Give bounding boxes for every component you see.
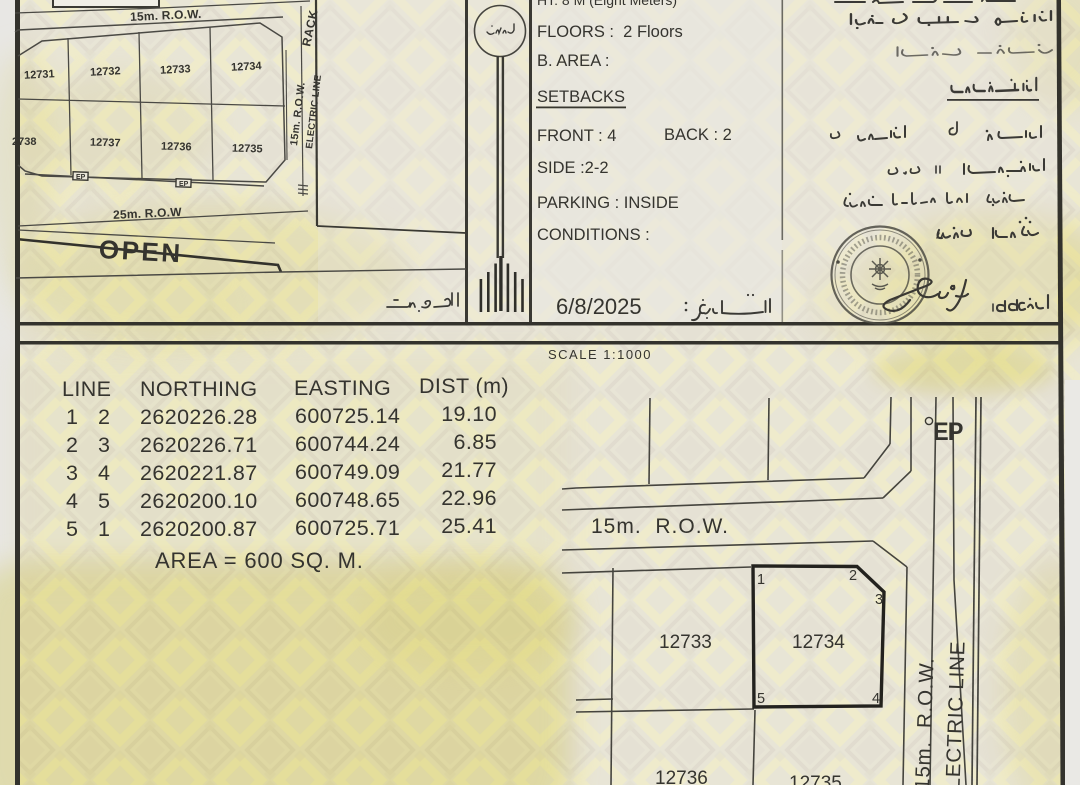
svg-text:2620221.87: 2620221.87 [140, 461, 258, 485]
svg-text:600725.14: 600725.14 [295, 404, 400, 428]
svg-text:12736: 12736 [161, 141, 192, 154]
svg-text:SETBACKS: SETBACKS [537, 88, 625, 106]
svg-text:FRONT : 4: FRONT : 4 [537, 127, 616, 145]
svg-text:DIST (m): DIST (m) [419, 374, 509, 398]
svg-text:25.41: 25.41 [441, 514, 497, 538]
svg-text:600749.09: 600749.09 [295, 460, 400, 484]
svg-text:EASTING: EASTING [294, 376, 391, 400]
svg-text:4: 4 [98, 461, 110, 485]
svg-text:600744.24: 600744.24 [295, 432, 400, 456]
svg-text:2620200.87: 2620200.87 [140, 517, 258, 541]
svg-text:12733: 12733 [659, 632, 712, 653]
svg-text:NORTHING: NORTHING [140, 377, 257, 401]
svg-text:AREA = 600 SQ. M.: AREA = 600 SQ. M. [155, 548, 364, 573]
svg-text:12733: 12733 [160, 63, 191, 77]
svg-text:15m. R.O.W.: 15m. R.O.W. [591, 515, 729, 538]
svg-text:2620226.28: 2620226.28 [140, 405, 258, 429]
svg-text:4: 4 [66, 489, 78, 513]
svg-text:6/8/2025: 6/8/2025 [556, 294, 642, 319]
svg-text:5: 5 [66, 517, 78, 541]
svg-text:12737: 12737 [90, 137, 121, 150]
svg-text:600748.65: 600748.65 [295, 488, 400, 512]
svg-text:6.85: 6.85 [454, 430, 497, 454]
svg-text:15m. R.O.W.: 15m. R.O.W. [911, 657, 939, 785]
svg-text:2620226.71: 2620226.71 [140, 433, 258, 457]
svg-text:OPEN: OPEN [98, 234, 183, 268]
svg-text:2620200.10: 2620200.10 [140, 489, 258, 513]
svg-text:FLOORS : 2 Floors: FLOORS : 2 Floors [537, 23, 683, 41]
svg-text:ELECTRIC LINE: ELECTRIC LINE [941, 640, 970, 785]
svg-text:12732: 12732 [90, 65, 121, 79]
svg-text:2: 2 [849, 568, 857, 584]
svg-text:EP: EP [179, 181, 189, 188]
svg-text:1: 1 [66, 405, 78, 429]
svg-text:5: 5 [98, 489, 110, 513]
svg-text:600725.71: 600725.71 [295, 516, 400, 540]
svg-text:2: 2 [66, 433, 78, 457]
svg-text:12735: 12735 [789, 773, 842, 785]
svg-text:12731: 12731 [24, 68, 55, 82]
svg-text:PARKING : INSIDE: PARKING : INSIDE [537, 194, 679, 212]
svg-text:SCALE 1:1000: SCALE 1:1000 [548, 347, 652, 362]
svg-text:21.77: 21.77 [441, 458, 497, 482]
svg-text:12734: 12734 [792, 632, 845, 653]
svg-text:CONDITIONS :: CONDITIONS : [537, 226, 650, 244]
svg-text:5: 5 [757, 691, 765, 707]
svg-text:1: 1 [757, 572, 765, 588]
svg-text:1: 1 [98, 517, 110, 541]
svg-text:4: 4 [872, 691, 880, 707]
svg-text:2: 2 [98, 405, 110, 429]
svg-text:12736: 12736 [655, 768, 708, 785]
svg-text:2738: 2738 [12, 136, 36, 148]
svg-text:3: 3 [66, 461, 78, 485]
svg-text:HT: 8 M (Eight Meters): HT: 8 M (Eight Meters) [537, 0, 677, 8]
svg-text:SIDE :2-2: SIDE :2-2 [537, 159, 609, 177]
svg-text:LINE: LINE [62, 377, 111, 401]
svg-text:19.10: 19.10 [441, 402, 497, 426]
svg-text:12735: 12735 [232, 143, 263, 156]
svg-text:EP: EP [933, 418, 963, 446]
svg-text:22.96: 22.96 [441, 486, 497, 510]
svg-text:3: 3 [875, 592, 883, 608]
svg-text:EP: EP [76, 174, 86, 181]
svg-text:3: 3 [98, 433, 110, 457]
svg-text:BACK : 2: BACK : 2 [664, 126, 732, 144]
svg-text:12734: 12734 [231, 60, 263, 74]
svg-text:B. AREA :: B. AREA : [537, 52, 609, 70]
